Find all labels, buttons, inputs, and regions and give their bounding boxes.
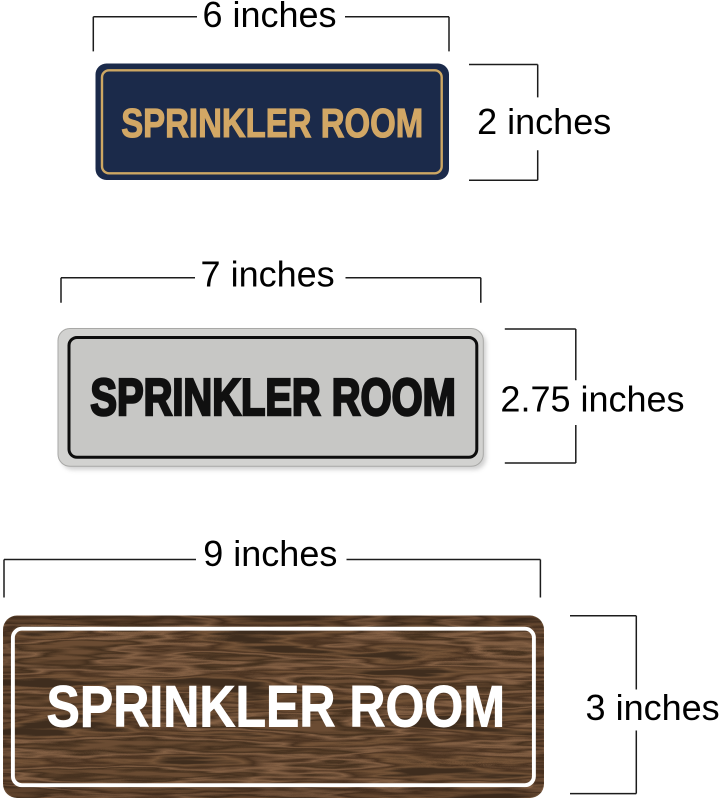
svg-text:2.75 inches: 2.75 inches	[500, 378, 684, 419]
svg-text:7 inches: 7 inches	[201, 253, 335, 294]
svg-text:9 inches: 9 inches	[203, 533, 337, 574]
svg-text:SPRINKLER ROOM: SPRINKLER ROOM	[121, 100, 423, 146]
svg-text:SPRINKLER ROOM: SPRINKLER ROOM	[90, 369, 455, 427]
svg-text:3 inches: 3 inches	[586, 687, 720, 728]
svg-text:6 inches: 6 inches	[202, 0, 336, 35]
svg-text:SPRINKLER ROOM: SPRINKLER ROOM	[47, 675, 506, 740]
svg-text:2 inches: 2 inches	[477, 101, 611, 142]
